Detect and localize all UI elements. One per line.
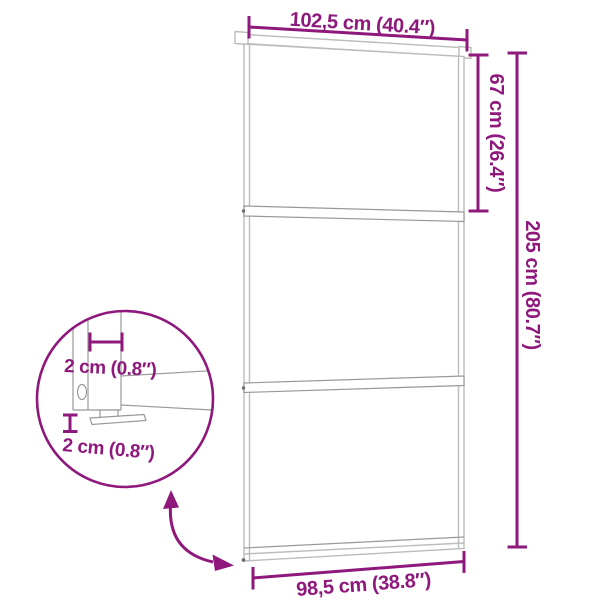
dimension-upper-height: 67 cm (26.4″) (469, 55, 508, 211)
arrow-head-up (163, 490, 179, 509)
zoom-arrow-icon (163, 490, 234, 571)
dimension-label-detail-width: 2 cm (0.8″) (64, 356, 157, 381)
divider-left-joint-upper (242, 209, 245, 212)
track-left-end-cap (235, 32, 248, 45)
dimension-diagram: 102,5 cm (40.4″) 67 cm (26.4″) 205 cm (8… (0, 0, 600, 600)
arrow-head-right (213, 555, 235, 572)
dimension-label-upper-height: 67 cm (26.4″) (485, 74, 507, 193)
bottom-left-corner-joint (242, 558, 246, 562)
dimension-label-top-width: 102,5 cm (40.4″) (289, 9, 436, 40)
sliding-door-drawing (235, 32, 471, 562)
detail-callout: 2 cm (0.8″) 2 cm (0.8″) (37, 303, 214, 487)
arrow-curve (170, 506, 213, 562)
door-panel-outline (244, 44, 464, 561)
diagram-canvas: 102,5 cm (40.4″) 67 cm (26.4″) 205 cm (8… (0, 0, 600, 600)
dimension-full-height: 205 cm (80.7″) (508, 53, 544, 547)
divider-left-joint-lower (242, 386, 245, 389)
dimension-label-full-height: 205 cm (80.7″) (521, 220, 543, 350)
